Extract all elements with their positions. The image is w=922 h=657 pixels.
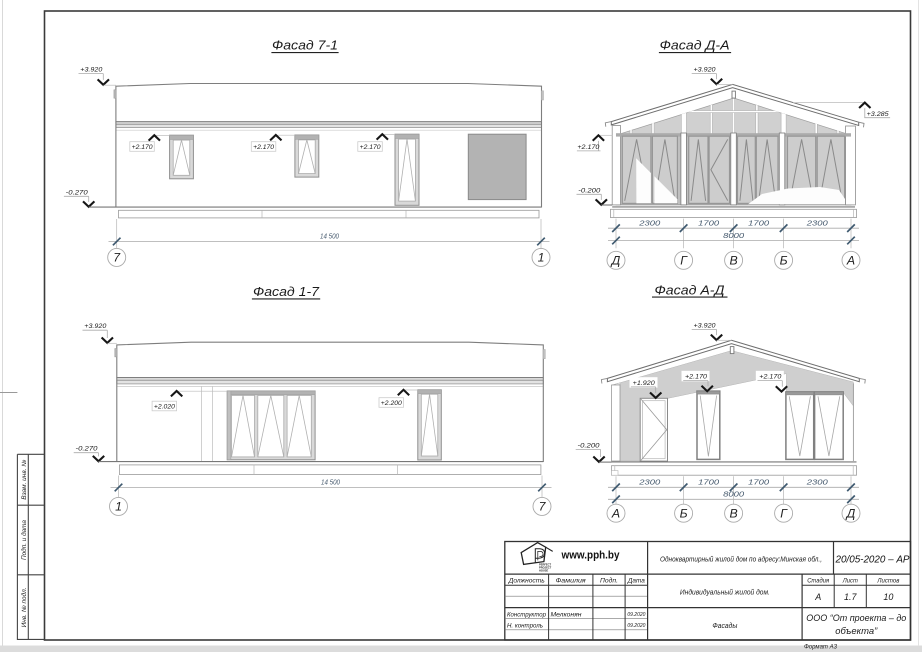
svg-text:Одноквартирный жилой дом по ад: Одноквартирный жилой дом по адресу:Минск… <box>660 555 822 563</box>
svg-text:2300: 2300 <box>805 219 827 228</box>
svg-text:+2.170: +2.170 <box>253 144 274 151</box>
svg-text:Дата: Дата <box>627 578 645 585</box>
svg-text:+2.170: +2.170 <box>577 144 599 151</box>
svg-text:Фасад 7-1: Фасад 7-1 <box>272 38 338 53</box>
svg-text:В: В <box>729 254 737 268</box>
svg-text:10: 10 <box>883 592 893 602</box>
svg-text:-0.270: -0.270 <box>66 189 88 196</box>
svg-text:HOUSE: HOUSE <box>539 568 548 572</box>
svg-text:+2.020: +2.020 <box>154 403 175 410</box>
svg-text:Лист: Лист <box>842 578 858 585</box>
svg-text:Подп. и дата: Подп. и дата <box>21 519 28 560</box>
svg-text:+2.170: +2.170 <box>132 144 153 151</box>
svg-text:1: 1 <box>115 500 122 514</box>
svg-text:8000: 8000 <box>723 231 744 240</box>
svg-text:А: А <box>611 506 620 520</box>
svg-text:Фасад Д-А: Фасад Д-А <box>660 38 730 53</box>
svg-text:1700: 1700 <box>748 478 769 487</box>
svg-text:2300: 2300 <box>638 219 660 228</box>
svg-text:А: А <box>814 592 821 602</box>
svg-text:+2.170: +2.170 <box>685 374 707 381</box>
svg-text:+2.200: +2.200 <box>381 400 402 407</box>
svg-text:+1.920: +1.920 <box>633 380 655 387</box>
svg-text:+2.170: +2.170 <box>360 144 381 151</box>
svg-text:+3.920: +3.920 <box>694 322 716 329</box>
svg-text:Н. контроль: Н. контроль <box>507 622 543 629</box>
svg-text:www.pph.by: www.pph.by <box>561 549 620 561</box>
svg-text:А: А <box>846 254 855 268</box>
svg-text:1700: 1700 <box>748 219 769 228</box>
svg-text:Д: Д <box>610 254 621 268</box>
svg-text:8000: 8000 <box>723 490 744 499</box>
svg-text:Должность: Должность <box>508 578 546 585</box>
svg-text:Фамилия: Фамилия <box>556 578 586 585</box>
svg-text:09.2020: 09.2020 <box>627 623 645 629</box>
svg-text:Мелконян: Мелконян <box>551 611 583 618</box>
svg-text:20/05-2020 – АР: 20/05-2020 – АР <box>835 554 910 565</box>
svg-text:+2.170: +2.170 <box>759 374 781 381</box>
svg-text:+3.920: +3.920 <box>84 323 106 330</box>
svg-text:14 500: 14 500 <box>321 480 340 487</box>
svg-text:Фасад А-Д: Фасад А-Д <box>655 282 725 297</box>
svg-text:ООО “От проекта – до: ООО “От проекта – до <box>806 613 907 624</box>
svg-text:+3.920: +3.920 <box>694 67 716 74</box>
svg-text:Д: Д <box>845 506 856 520</box>
svg-text:Стадия: Стадия <box>807 577 830 585</box>
svg-text:-0.200: -0.200 <box>578 187 600 194</box>
svg-text:объекта”: объекта” <box>835 626 878 637</box>
svg-text:Фасад 1-7: Фасад 1-7 <box>253 284 320 299</box>
svg-text:14 500: 14 500 <box>320 234 339 241</box>
svg-text:+3.285: +3.285 <box>867 111 889 118</box>
svg-text:-0.270: -0.270 <box>76 446 98 453</box>
svg-text:09.2020: 09.2020 <box>627 612 645 618</box>
svg-text:Инв. № подл.: Инв. № подл. <box>21 587 28 627</box>
svg-text:Фасады: Фасады <box>712 621 738 630</box>
svg-text:2300: 2300 <box>805 478 827 487</box>
svg-text:Листов: Листов <box>876 578 900 585</box>
svg-text:Подп.: Подп. <box>600 577 618 585</box>
svg-text:Формат А3: Формат А3 <box>804 643 837 650</box>
svg-text:Конструктор: Конструктор <box>507 611 546 618</box>
svg-text:+3.920: +3.920 <box>80 67 102 74</box>
svg-text:1700: 1700 <box>698 219 719 228</box>
svg-text:Индивидуальный жилой дом.: Индивидуальный жилой дом. <box>680 587 770 596</box>
svg-text:2300: 2300 <box>638 478 660 487</box>
svg-text:7: 7 <box>113 251 121 265</box>
svg-text:В: В <box>729 506 737 520</box>
svg-text:1700: 1700 <box>698 478 719 487</box>
svg-text:1: 1 <box>538 251 545 265</box>
svg-text:1.7: 1.7 <box>844 592 858 602</box>
svg-text:-0.200: -0.200 <box>578 442 600 449</box>
svg-text:7: 7 <box>539 500 547 514</box>
svg-text:Взам. инв. №: Взам. инв. № <box>21 459 28 499</box>
svg-text:Б: Б <box>780 254 788 268</box>
svg-text:Б: Б <box>680 506 688 520</box>
